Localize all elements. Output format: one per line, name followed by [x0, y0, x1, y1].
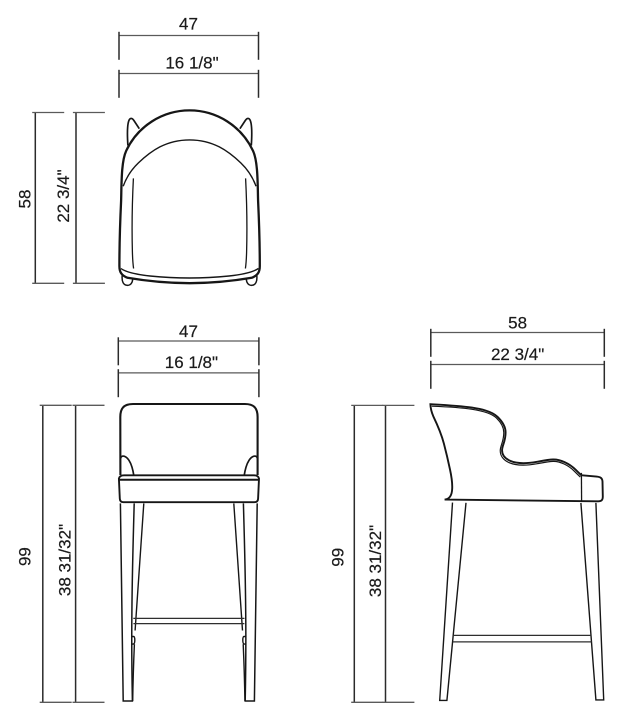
svg-text:47: 47: [179, 322, 198, 341]
svg-text:99: 99: [15, 547, 34, 566]
svg-text:16 1/8": 16 1/8": [165, 53, 218, 72]
svg-text:38 31/32": 38 31/32": [366, 525, 385, 597]
svg-text:58: 58: [508, 313, 527, 332]
svg-text:47: 47: [179, 15, 198, 34]
svg-text:22 3/4": 22 3/4": [54, 169, 73, 222]
svg-text:22 3/4": 22 3/4": [491, 345, 544, 364]
svg-text:38 31/32": 38 31/32": [55, 524, 74, 596]
svg-text:58: 58: [16, 190, 35, 209]
svg-text:99: 99: [329, 548, 348, 567]
svg-text:16 1/8": 16 1/8": [165, 353, 218, 372]
